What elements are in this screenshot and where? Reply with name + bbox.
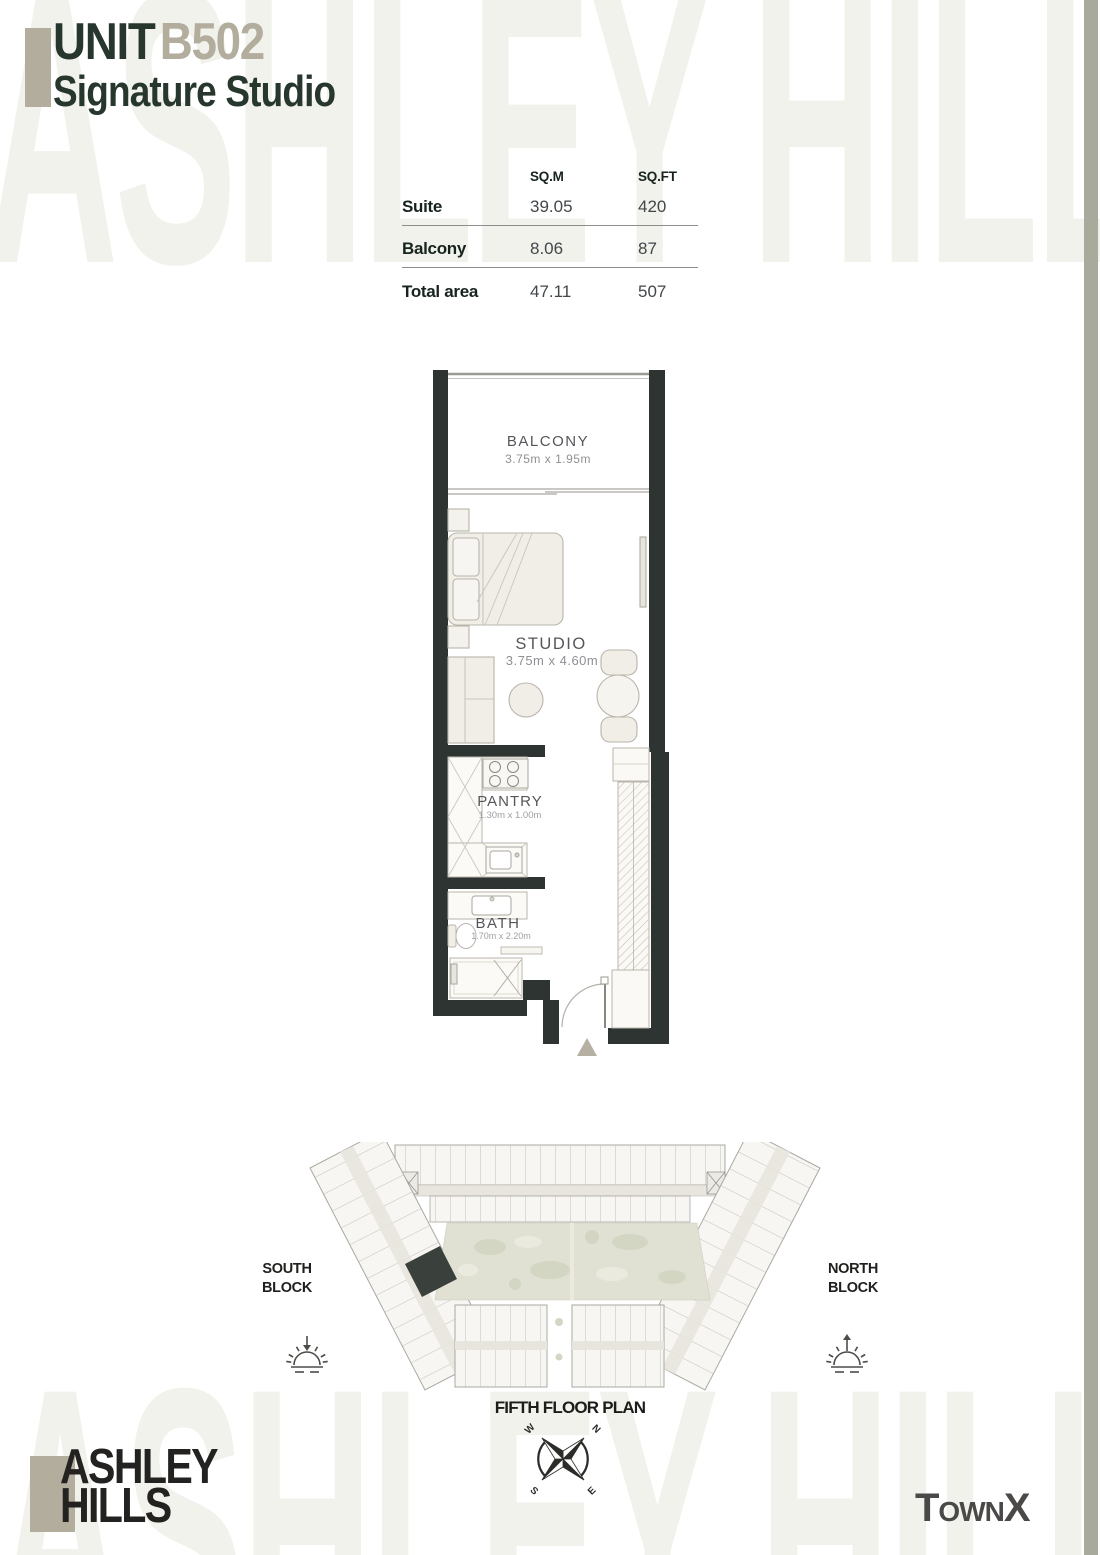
compass-w: W [523, 1422, 538, 1437]
table-header-row: SQ.M SQ.FT [402, 160, 698, 184]
compass-e: E [586, 1485, 599, 1498]
entrance-marker [577, 1038, 597, 1056]
row-label: Balcony [402, 239, 530, 259]
bottom-blocks [455, 1305, 664, 1387]
balcony-sqm: 8.06 [530, 239, 638, 259]
pantry-label: PANTRY [477, 793, 542, 810]
sliding-door [448, 489, 649, 494]
wardrobe [612, 748, 649, 1028]
row-label: Total area [402, 282, 530, 302]
suite-sqft: 420 [638, 197, 698, 217]
bed [448, 509, 563, 648]
table-row-total: Total area 47.11 507 [402, 268, 698, 310]
balcony-label: BALCONY [507, 433, 589, 450]
column-sqft: SQ.FT [638, 169, 698, 184]
row-label: Suite [402, 197, 530, 217]
compass-star [542, 1438, 584, 1480]
pantry-dims: 1.30m x 1.00m [479, 810, 542, 821]
sunrise-icon [817, 1332, 877, 1382]
entry-door [562, 977, 608, 1028]
floor-key-plan [300, 1142, 830, 1400]
pouf [509, 683, 543, 717]
ashley-hills-logo: ASHLEY HILLS [60, 1448, 217, 1526]
unit-title: UNITB502 [53, 16, 349, 68]
bath-label: BATH [476, 915, 521, 932]
north-block-label: NORTH BLOCK [816, 1260, 890, 1298]
shower [450, 958, 522, 998]
compass-n: N [589, 1423, 602, 1436]
total-sqft: 507 [638, 282, 698, 302]
table-row-suite: Suite 39.05 420 [402, 184, 698, 226]
top-wing [395, 1145, 725, 1222]
compass-s: S [528, 1485, 541, 1498]
table-row-balcony: Balcony 8.06 87 [402, 226, 698, 268]
page-edge-bar [1084, 0, 1098, 1555]
balcony-sqft: 87 [638, 239, 698, 259]
unit-label: UNIT [53, 13, 154, 71]
brochure-page: ASHLEY HILLS ASHLEY HILLS UNITB502 Signa… [0, 0, 1100, 1555]
balcony-railing [448, 374, 649, 379]
courtyard [435, 1223, 710, 1300]
compass-rose-icon: N E S W [518, 1414, 608, 1504]
column-sqm: SQ.M [530, 169, 638, 184]
page-title: UNITB502 Signature Studio [53, 16, 389, 114]
townx-logo: TownX [915, 1486, 1030, 1531]
studio-dims: 3.75m x 4.60m [506, 653, 599, 668]
hob [483, 759, 528, 788]
area-table: SQ.M SQ.FT Suite 39.05 420 Balcony 8.06 … [402, 160, 698, 310]
kitchen-sink [486, 847, 522, 873]
unit-floor-plan: BALCONY 3.75m x 1.95m STUDIO 3.75m x 4.6… [425, 362, 755, 1062]
total-sqm: 47.11 [530, 282, 638, 302]
balcony-dims: 3.75m x 1.95m [505, 452, 591, 466]
tv-panel [640, 537, 646, 607]
studio-label: STUDIO [515, 635, 586, 653]
sofa [448, 657, 494, 743]
towel-shelf [501, 947, 542, 954]
unit-subtitle: Signature Studio [53, 70, 335, 114]
title-accent-bar [25, 28, 51, 107]
south-block-label: SOUTH BLOCK [250, 1260, 324, 1298]
bath-dims: 1.70m x 2.20m [471, 931, 531, 941]
sunset-icon [277, 1332, 337, 1382]
dining-set [597, 650, 639, 742]
suite-sqm: 39.05 [530, 197, 638, 217]
unit-number: B502 [160, 13, 264, 71]
